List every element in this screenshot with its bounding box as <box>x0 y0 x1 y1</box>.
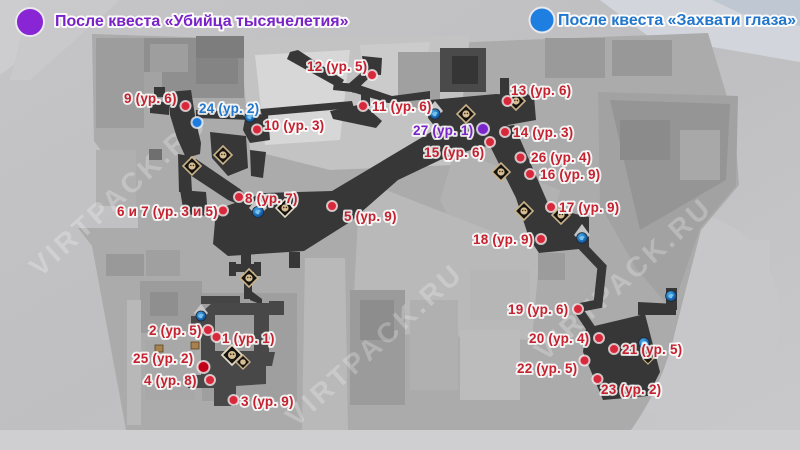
svg-text:9 (ур. 6): 9 (ур. 6) <box>124 91 177 106</box>
svg-text:24 (ур. 2): 24 (ур. 2) <box>199 101 259 116</box>
svg-text:22 (ур. 5): 22 (ур. 5) <box>517 361 577 376</box>
svg-text:12 (ур. 5): 12 (ур. 5) <box>307 59 367 74</box>
svg-text:26 (ур. 4): 26 (ур. 4) <box>531 150 591 165</box>
svg-text:23 (ур. 2): 23 (ур. 2) <box>601 382 661 397</box>
svg-text:27 (ур. 1): 27 (ур. 1) <box>413 123 473 138</box>
svg-text:16 (ур. 9): 16 (ур. 9) <box>540 167 600 182</box>
svg-text:20 (ур. 4): 20 (ур. 4) <box>529 331 589 346</box>
svg-text:18 (ур. 9): 18 (ур. 9) <box>473 232 533 247</box>
svg-text:2 (ур. 5): 2 (ур. 5) <box>149 323 202 338</box>
svg-text:10 (ур. 3): 10 (ур. 3) <box>264 118 324 133</box>
svg-text:1 (ур. 1): 1 (ур. 1) <box>222 331 275 346</box>
svg-text:11 (ур. 6): 11 (ур. 6) <box>372 99 432 114</box>
svg-text:14 (ур. 3): 14 (ур. 3) <box>513 125 573 140</box>
svg-text:21 (ур. 5): 21 (ур. 5) <box>622 342 682 357</box>
svg-text:13 (ур. 6): 13 (ур. 6) <box>511 83 571 98</box>
svg-text:5 (ур. 9): 5 (ур. 9) <box>344 209 397 224</box>
svg-text:25 (ур. 2): 25 (ур. 2) <box>133 351 193 366</box>
svg-text:4 (ур. 8): 4 (ур. 8) <box>144 373 197 388</box>
svg-text:3 (ур. 9): 3 (ур. 9) <box>241 394 294 409</box>
svg-text:15 (ур. 6): 15 (ур. 6) <box>424 145 484 160</box>
svg-text:6 и 7 (ур. 3 и 5): 6 и 7 (ур. 3 и 5) <box>117 204 218 219</box>
svg-text:После квеста «Убийца тысячелет: После квеста «Убийца тысячелетия» <box>55 13 349 30</box>
svg-text:8 (ур. 7): 8 (ур. 7) <box>245 191 298 206</box>
svg-text:19 (ур. 6): 19 (ур. 6) <box>508 302 568 317</box>
svg-text:17 (ур. 9): 17 (ур. 9) <box>559 200 619 215</box>
svg-text:После квеста «Захвати глаза»: После квеста «Захвати глаза» <box>558 12 796 29</box>
